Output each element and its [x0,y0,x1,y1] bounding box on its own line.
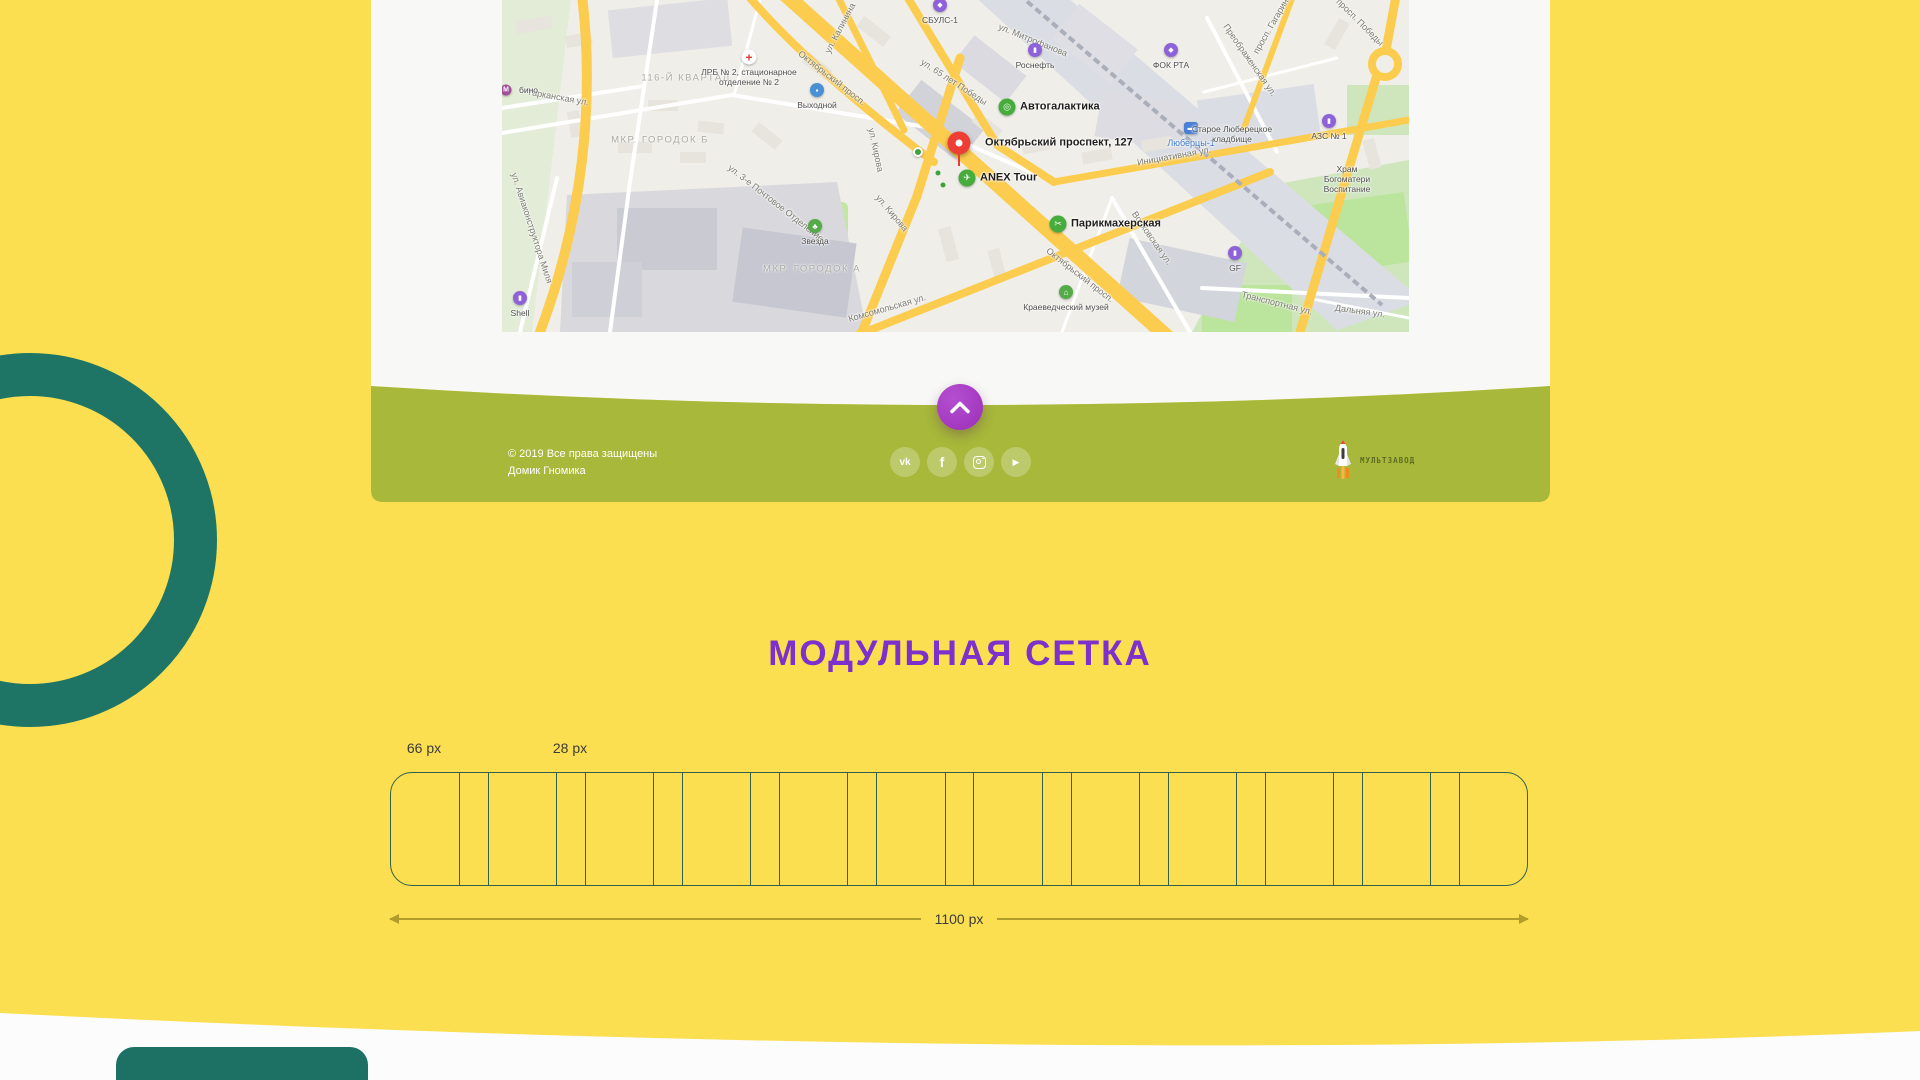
street-label: ул. Авиаконструктора Миля [509,171,554,284]
map-marker-metro: М [502,85,512,96]
grid-column-line [1139,773,1140,885]
map-marker-green: ✂ [1050,216,1067,233]
district-label: МКР. ГОРОДОК А [763,264,861,275]
poi-label: бино [519,85,538,95]
poi-label: ЛРБ № 2, стационарное отделение № 2 [701,67,797,87]
grid-column-line [1265,773,1266,885]
social-vk-button[interactable]: vk [890,447,920,477]
poi-label: Выходной [797,100,837,110]
grid-column-line [1362,773,1363,885]
social-facebook-button[interactable]: f [927,447,957,477]
poi-label: АЗС № 1 [1311,131,1346,141]
grid-column-line [1430,773,1431,885]
grid-column-line [585,773,586,885]
poi-label: Роснефть [1016,60,1055,70]
social-youtube-button[interactable]: ▶ [1001,447,1031,477]
poi-label: Звезда [801,236,829,246]
street-label: ул. Кирова [866,127,885,173]
copyright-line2: Домик Гномика [508,463,657,480]
poi-label: Октябрьский проспект, 127 [985,136,1133,149]
youtube-icon: ▶ [1013,457,1020,468]
street-label: Октябрьский просп. [796,49,867,108]
street-label: Транспортная ул. [1241,289,1314,316]
grid-column-line [1333,773,1334,885]
map-widget[interactable]: Октябрьский просп.Октябрьский просп.ул. … [502,0,1409,332]
poi-label: Храм Богоматери Воспитание [1316,164,1378,195]
grid-column-line [1042,773,1043,885]
page-background: Октябрьский просп.Октябрьский просп.ул. … [0,0,1920,1080]
map-marker-green-sm: ♣ [808,219,822,233]
street-label: просп. Победы [1334,0,1385,48]
map-marker-purple: ▮ [1028,43,1042,57]
grid-column-line [556,773,557,885]
map-marker-dot [913,147,923,157]
grid-column-line [459,773,460,885]
grid-section-title: МОДУЛЬНАЯ СЕТКА [0,634,1920,674]
poi-label: СБУЛС-1 [922,15,958,25]
street-label: просп. Гагарина [1251,0,1293,55]
map-marker-cross: + [742,50,757,65]
grid-diagram [390,772,1528,886]
street-label: Дальняя ул. [1334,303,1385,320]
column-width-label: 66 px [407,740,441,756]
dimension-arrow-right [997,918,1528,920]
social-instagram-button[interactable] [964,447,994,477]
poi-label: ФОК РТА [1153,60,1189,70]
poi-label: GF [1229,263,1241,273]
poi-label: ANEX Tour [980,171,1037,184]
map-marker-minidot [936,171,941,176]
map-marker-purple: ▮ [1228,246,1242,260]
vk-icon: vk [899,457,910,468]
grid-column-line [682,773,683,885]
chevron-up-icon [949,401,971,414]
map-marker-green: ◎ [999,99,1016,116]
street-label: ул. Калинина [823,1,858,54]
site-mockup-panel: Октябрьский просп.Октябрьский просп.ул. … [371,0,1550,502]
grid-width-value: 1100 px [935,911,984,927]
pin-tail [958,153,960,166]
grid-column-line [876,773,877,885]
brand-logo-text: МУЛЬТЗАВОД [1360,456,1415,465]
grid-column-line [653,773,654,885]
footer-copyright: © 2019 Все права защищены Домик Гномика [508,446,657,479]
grid-column-line [779,773,780,885]
district-label: МКР. ГОРОДОК Б [611,135,709,146]
grid-column-line [1071,773,1072,885]
scroll-to-top-button[interactable] [937,384,983,430]
poi-label: Краеведческий музей [1023,302,1109,312]
map-marker-purple: ▮ [1322,114,1336,128]
gutter-width-label: 28 px [553,740,587,756]
poi-label: Парикмахерская [1071,217,1161,230]
map-marker-blue: ▪ [810,83,824,97]
grid-column-line [945,773,946,885]
grid-column-line [1168,773,1169,885]
map-marker-purple: ▮ [513,291,527,305]
poi-label: Старое Люберецкое кладбище [1192,124,1272,144]
grid-column-line [847,773,848,885]
map-marker-minidot [941,183,946,188]
grid-width-dimension: 1100 px [390,908,1528,930]
street-label: Октябрьский просп. [1044,246,1115,305]
map-labels: Октябрьский просп.Октябрьский просп.ул. … [502,0,1409,332]
copyright-line1: © 2019 Все права защищены [508,446,657,463]
instagram-icon [973,456,986,469]
grid-column-line [750,773,751,885]
poi-label: Shell [511,308,530,318]
dimension-arrow-left [390,918,921,920]
rocket-icon [1333,439,1353,481]
map-marker-main-pin [948,132,971,155]
facebook-icon: f [940,454,945,470]
map-marker-purple: ◆ [933,0,947,12]
footer-brand-logo: МУЛЬТЗАВОД [1333,438,1415,482]
street-label: ул. 65 лет Победы [919,57,989,107]
street-label: ул. Кирова [874,193,910,234]
teal-card-top [116,1047,368,1080]
map-marker-green-sm: ⌂ [1059,285,1073,299]
grid-column-line [488,773,489,885]
grid-column-line [1236,773,1237,885]
map-marker-green: ✈ [959,170,976,187]
poi-label: Автогалактика [1020,100,1100,113]
grid-column-line [1459,773,1460,885]
street-label: Комсомольская ул. [847,292,927,324]
map-marker-purple: ◆ [1164,43,1178,57]
grid-column-line [973,773,974,885]
